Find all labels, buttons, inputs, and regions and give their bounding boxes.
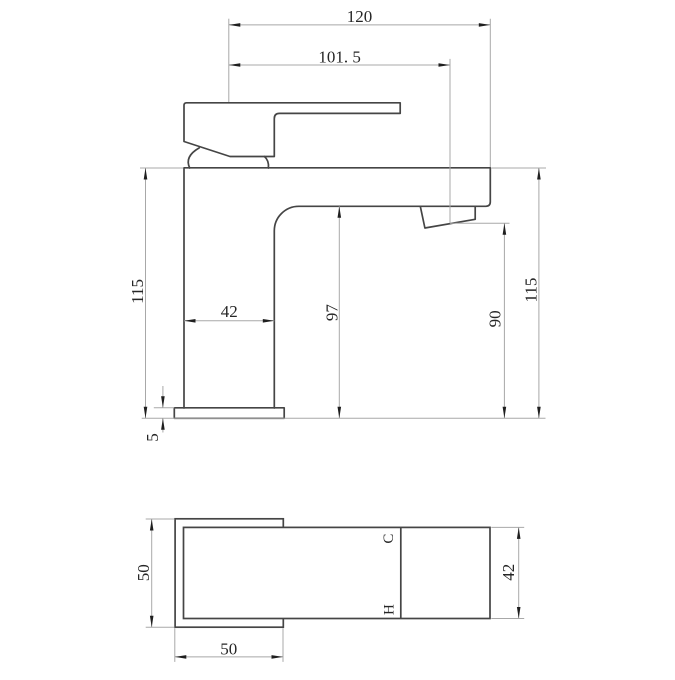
svg-text:42: 42 xyxy=(499,564,518,581)
svg-text:42: 42 xyxy=(221,302,238,321)
svg-text:97: 97 xyxy=(322,304,341,322)
svg-text:50: 50 xyxy=(220,640,237,659)
svg-text:120: 120 xyxy=(347,7,373,26)
svg-text:5: 5 xyxy=(143,433,162,442)
svg-text:50: 50 xyxy=(134,564,153,581)
svg-text:H: H xyxy=(382,604,398,615)
svg-text:C: C xyxy=(381,534,397,544)
svg-text:115: 115 xyxy=(522,278,541,303)
svg-text:101. 5: 101. 5 xyxy=(318,47,361,66)
svg-text:115: 115 xyxy=(128,279,147,304)
svg-text:90: 90 xyxy=(485,310,504,327)
